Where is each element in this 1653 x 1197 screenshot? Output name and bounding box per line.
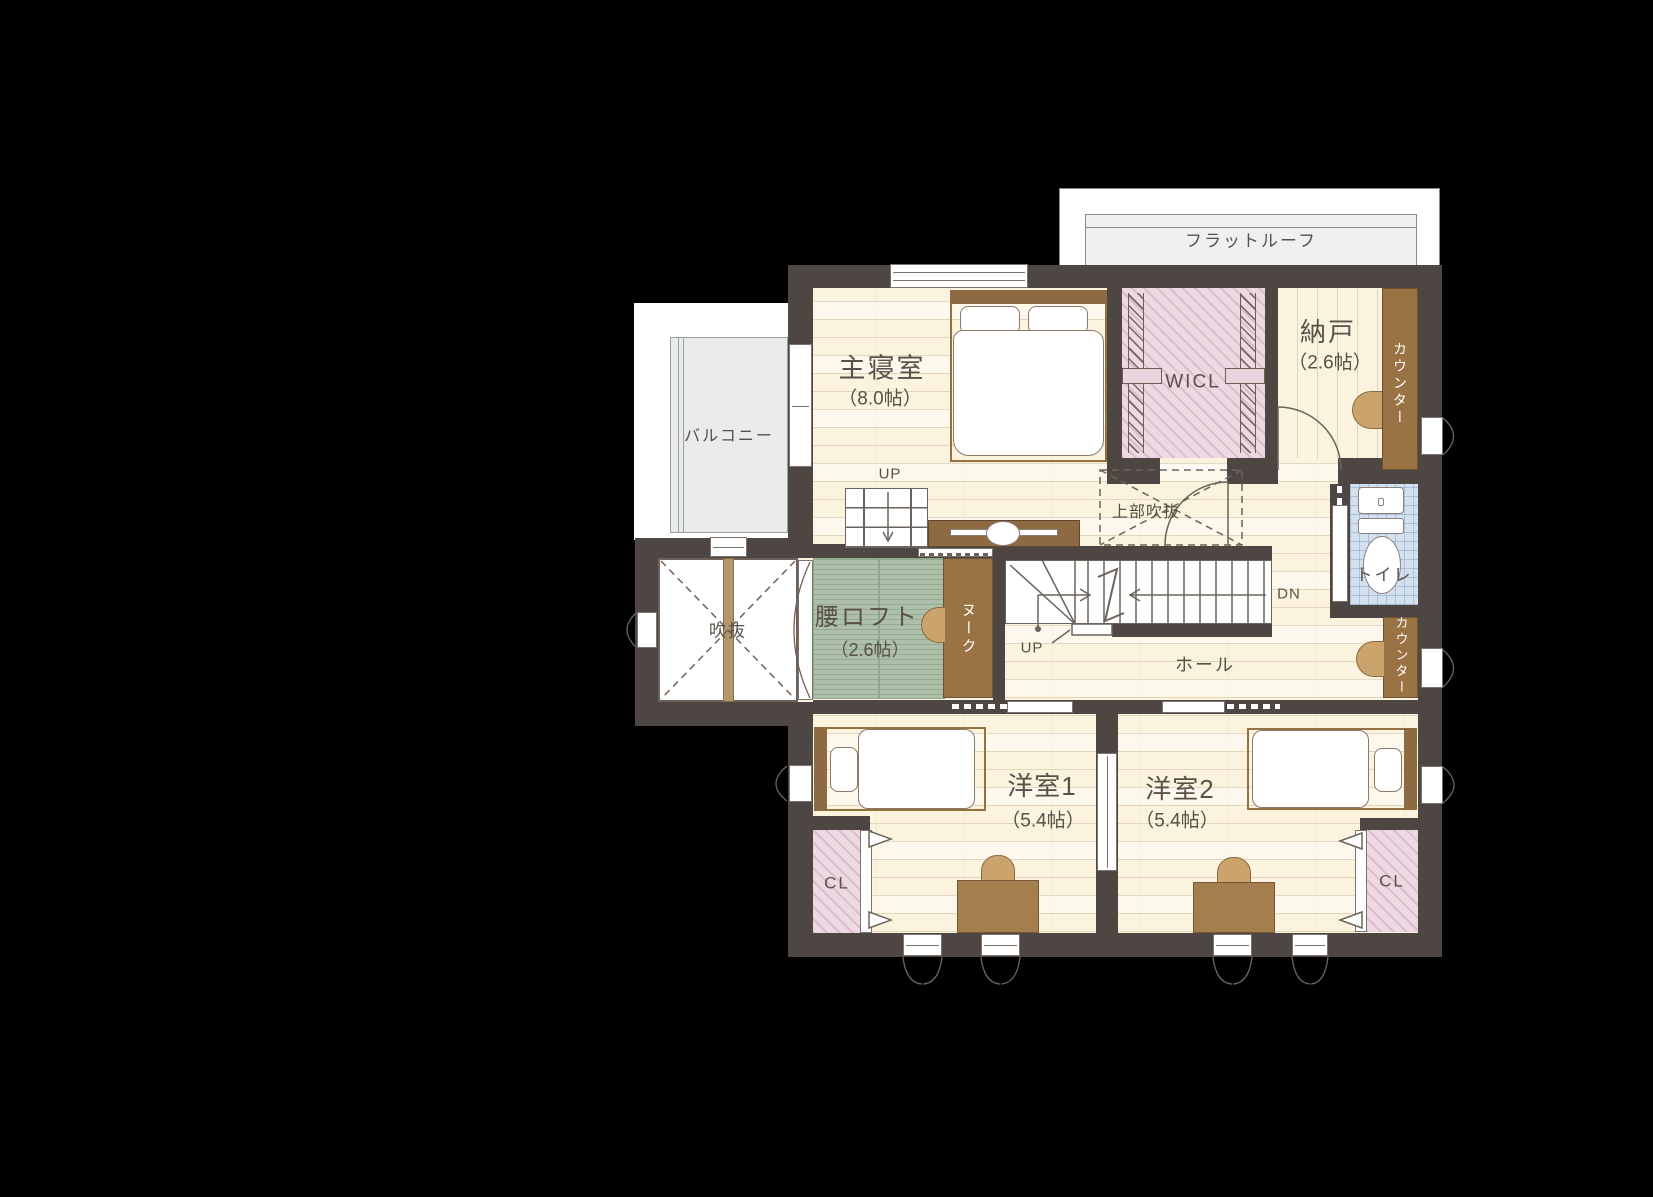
label-toilet: トイレ: [1356, 567, 1413, 584]
label-closet-left: CL: [824, 875, 850, 892]
closet-left-door: [860, 830, 872, 933]
label-up-ladder: UP: [879, 467, 902, 482]
desk-room2: [1193, 882, 1275, 933]
window-void-left: [637, 612, 657, 648]
window-void-topwall: [710, 537, 747, 557]
door-pocket-room2: [1227, 704, 1280, 709]
label-hall: ホール: [1175, 656, 1235, 674]
label-nook: ヌーク: [961, 602, 976, 656]
bed-room2-headboard: [1404, 728, 1417, 810]
bed-room1-pillow: [830, 747, 858, 792]
wall-wicl-stub-left: [1107, 458, 1160, 484]
label-room1-size: （5.4帖）: [1001, 812, 1084, 831]
label-loft: 腰ロフト: [815, 606, 919, 630]
label-master-bedroom: 主寝室: [839, 356, 926, 383]
door-room2: [1162, 701, 1225, 713]
door-room1: [1007, 701, 1073, 713]
label-flat-roof: フラットルーフ: [1185, 233, 1317, 250]
window-room2-right: [1421, 766, 1443, 804]
window-room2-bottom-1: [1213, 934, 1252, 956]
wall-top: [788, 265, 1442, 288]
label-storage: 納戸: [1300, 319, 1356, 345]
counter-lower-stool: [1356, 641, 1384, 677]
balcony-divider: [678, 337, 684, 533]
label-void-above: 上部吹抜: [1112, 505, 1180, 521]
window-room1-bottom-1: [903, 934, 942, 956]
stair-box: [1005, 560, 1272, 624]
window-balcony: [789, 344, 812, 467]
label-up-stairs: UP: [1021, 641, 1044, 656]
wall-stair-top: [993, 546, 1272, 560]
toilet-basin-drain: [1378, 498, 1384, 506]
wall-storage-left: [1265, 288, 1278, 458]
label-room2-size: （5.4帖）: [1135, 812, 1218, 831]
loft-ladder-rail-r: [910, 488, 912, 548]
label-storage-size: （2.6帖）: [1288, 354, 1371, 373]
window-master-top: [890, 264, 1028, 288]
window-hall-right: [1421, 648, 1443, 688]
label-down-stairs: DN: [1277, 587, 1301, 602]
window-room1-bottom-2: [981, 934, 1020, 956]
label-closet-right: CL: [1379, 873, 1405, 890]
bed-room2-duvet: [1252, 730, 1369, 808]
chair-room1: [981, 855, 1015, 881]
bed-master-duvet: [953, 330, 1104, 456]
desk-room1: [957, 880, 1039, 933]
door-pocket-room1: [952, 704, 1007, 709]
door-partition: [1097, 753, 1117, 871]
label-balcony: バルコニー: [684, 429, 774, 445]
label-room2: 洋室2: [1145, 776, 1214, 802]
bed-room1-headboard: [814, 727, 827, 811]
wall-stair-bottom: [1112, 624, 1272, 637]
stair-rail: [918, 548, 993, 557]
void-loft-opening: [798, 560, 813, 700]
wall-stub-mid: [1227, 458, 1278, 484]
window-room2-bottom-2: [1292, 934, 1328, 956]
wall-wicl-left: [1107, 288, 1122, 484]
dresser-knob: [986, 521, 1020, 546]
loft-ladder-rail-l: [863, 488, 865, 548]
door-toilet: [1332, 505, 1348, 602]
wall-stair-left: [993, 558, 1005, 702]
wall-left-lower: [788, 702, 813, 957]
chair-room2: [1217, 857, 1251, 883]
window-counter-upper: [1421, 417, 1443, 455]
label-wicl: WICL: [1165, 373, 1221, 392]
wall-void-bottom: [635, 702, 813, 726]
bed-room1-duvet: [858, 729, 975, 809]
window-room1-left: [789, 765, 812, 802]
flat-roof-line: [1086, 227, 1416, 228]
wicl-crossbar-left: [1122, 368, 1162, 384]
label-room1: 洋室1: [1007, 773, 1076, 799]
wall-closet-right-stub: [1360, 818, 1418, 830]
wall-bottom: [788, 933, 1442, 957]
wicl-open-entry: [1160, 466, 1227, 471]
bed-master-headboard: [950, 290, 1107, 304]
loft-ladder: [845, 488, 928, 548]
wicl-crossbar-right: [1225, 368, 1265, 384]
label-loft-size: （2.6帖）: [830, 641, 909, 659]
wall-rooms-top: [813, 700, 1442, 714]
label-counter-lower: カウンター: [1395, 616, 1408, 696]
bed-room2-pillow: [1374, 748, 1402, 792]
door-toilet-pocket: [1337, 486, 1342, 505]
toilet-tank: [1358, 518, 1404, 534]
closet-right-door: [1355, 830, 1367, 932]
label-master-size: （8.0帖）: [838, 390, 921, 409]
wall-closet-left-stub: [813, 816, 870, 830]
label-void: 吹抜: [709, 623, 747, 640]
counter-upper-stool: [1352, 391, 1382, 429]
label-counter-upper: カウンター: [1393, 342, 1407, 427]
floor-plan-canvas: フラットルーフ バルコニー 主寝室 （8.0帖） WICL 納戸 （2.6帖） …: [0, 0, 1653, 1197]
